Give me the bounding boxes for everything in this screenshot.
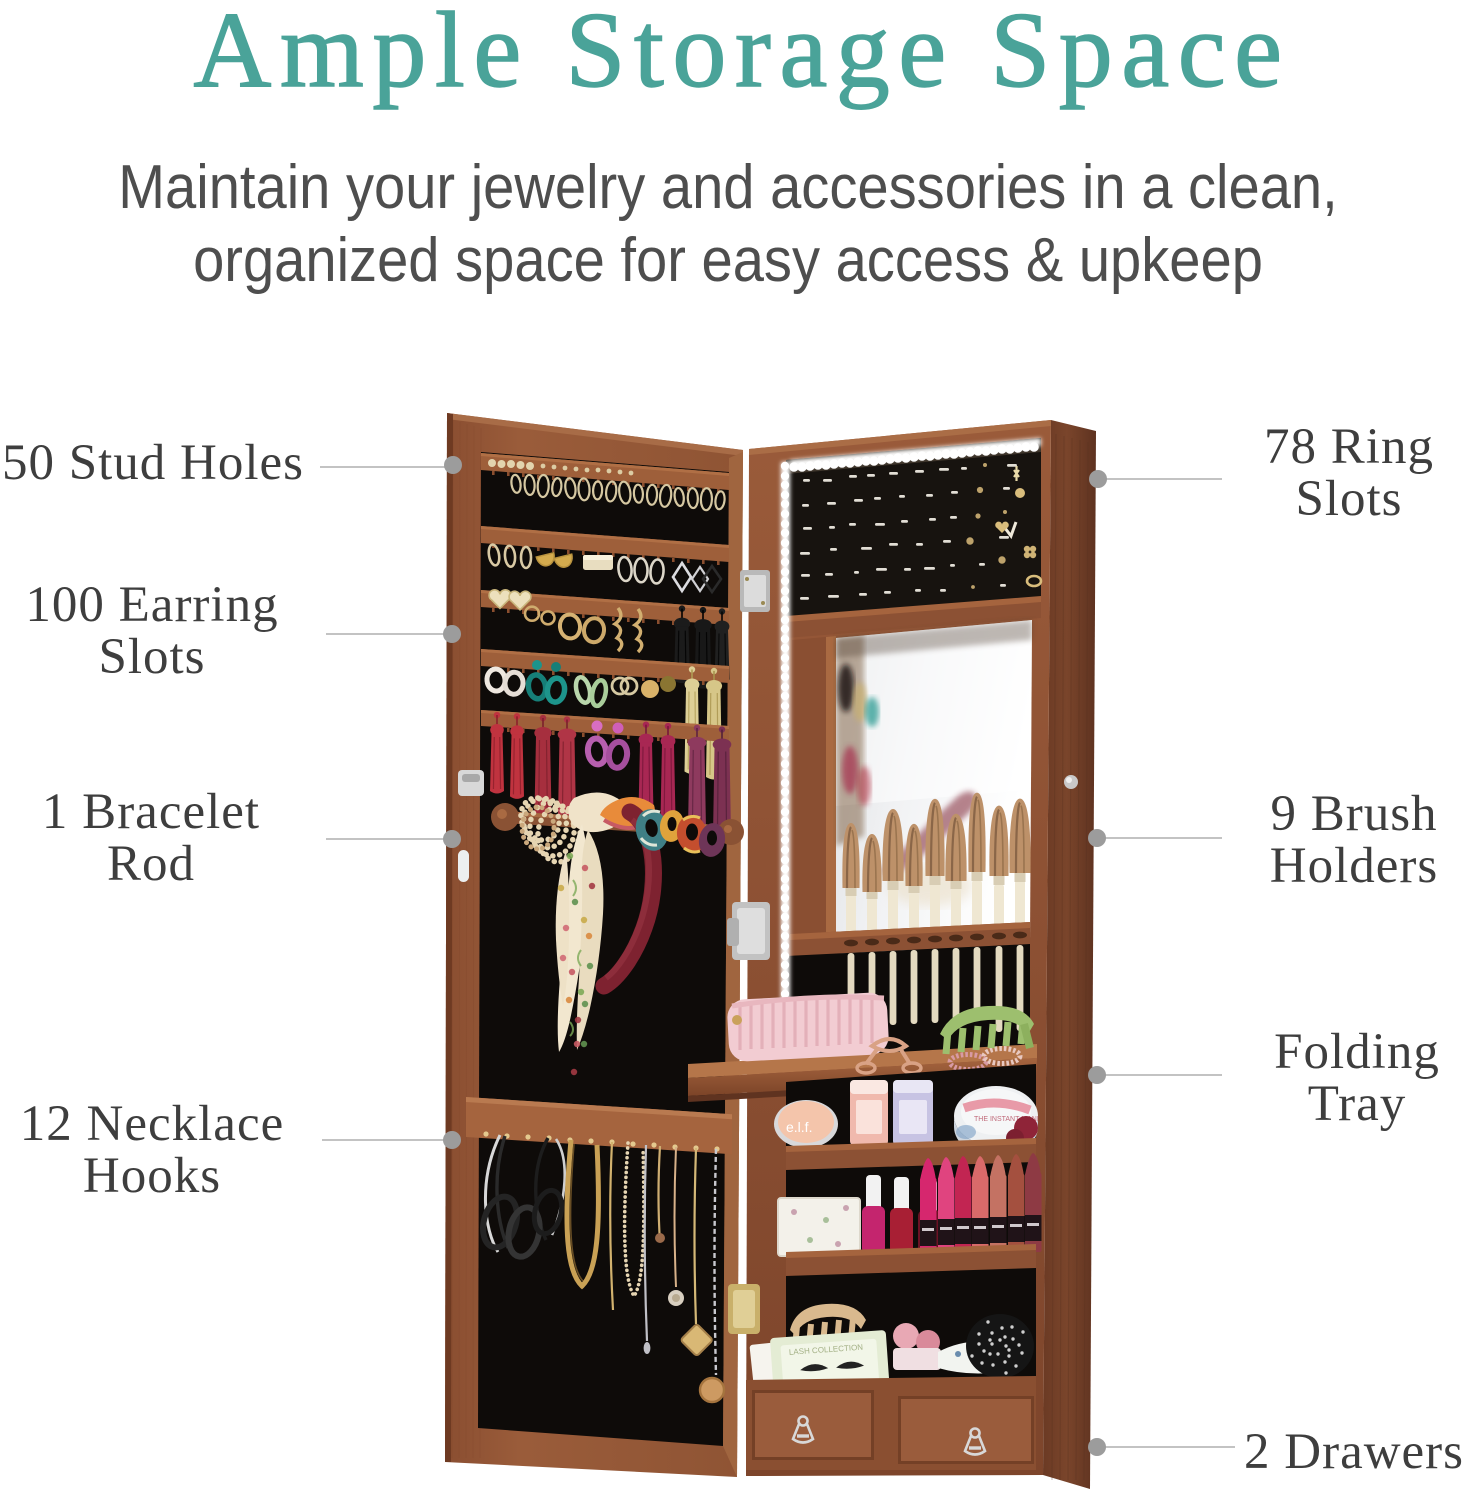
svg-text:e.l.f.: e.l.f. bbox=[786, 1119, 812, 1135]
